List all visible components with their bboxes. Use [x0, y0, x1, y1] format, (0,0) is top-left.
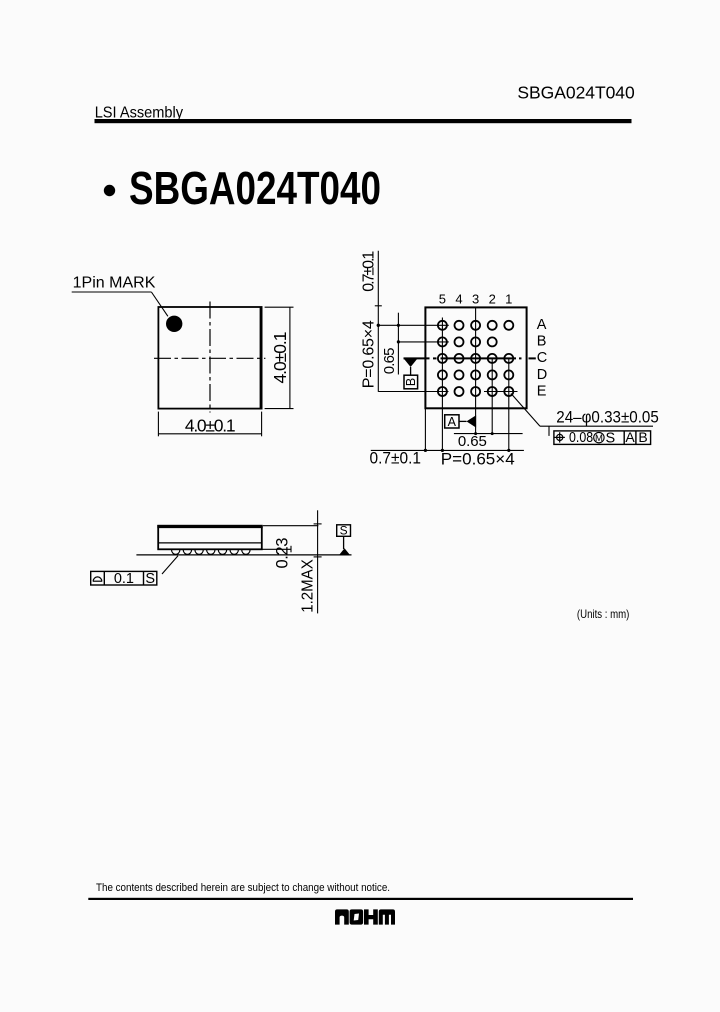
- svg-text:(Units : mm): (Units : mm): [577, 607, 630, 621]
- svg-text:2: 2: [489, 291, 496, 306]
- svg-text:B: B: [404, 378, 418, 386]
- svg-text:1Pin MARK: 1Pin MARK: [73, 274, 156, 291]
- svg-text:0.65: 0.65: [458, 433, 487, 450]
- svg-text:A: A: [448, 415, 457, 429]
- svg-text:A: A: [537, 317, 547, 333]
- svg-text:M: M: [595, 433, 603, 444]
- svg-text:LSI Assembly: LSI Assembly: [95, 104, 183, 121]
- svg-text:4.0±0.1: 4.0±0.1: [270, 332, 290, 384]
- svg-text:E: E: [537, 383, 547, 399]
- svg-text:0.1: 0.1: [114, 571, 134, 587]
- svg-text:0.7±0.1: 0.7±0.1: [361, 251, 378, 292]
- svg-text:5: 5: [439, 291, 446, 306]
- svg-text:0.7±0.1: 0.7±0.1: [370, 450, 422, 468]
- svg-text:0.08: 0.08: [569, 430, 593, 446]
- svg-text:S: S: [340, 523, 348, 537]
- svg-text:3: 3: [472, 291, 479, 306]
- svg-text:C: C: [537, 350, 547, 366]
- svg-text:A: A: [625, 429, 635, 445]
- svg-text:0.23: 0.23: [274, 538, 292, 569]
- svg-text:1.2MAX: 1.2MAX: [300, 559, 317, 613]
- svg-text:SBGA024T040: SBGA024T040: [129, 162, 381, 214]
- svg-text:B: B: [638, 429, 647, 445]
- svg-text:P=0.65×4: P=0.65×4: [441, 449, 515, 468]
- svg-text:S: S: [145, 571, 155, 587]
- svg-text:SBGA024T040: SBGA024T040: [517, 83, 635, 103]
- svg-text:0.65: 0.65: [381, 348, 398, 375]
- svg-text:S: S: [606, 430, 616, 446]
- svg-text:4.0±0.1: 4.0±0.1: [185, 415, 236, 435]
- svg-text:P=0.65×4: P=0.65×4: [361, 320, 378, 388]
- svg-text:The contents described herein: The contents described herein are subjec…: [96, 882, 390, 894]
- svg-text:B: B: [537, 334, 547, 350]
- svg-text:24–φ0.33±0.05: 24–φ0.33±0.05: [556, 407, 659, 426]
- svg-text:D: D: [537, 367, 547, 383]
- svg-text:1: 1: [505, 291, 512, 306]
- svg-text:4: 4: [455, 291, 462, 306]
